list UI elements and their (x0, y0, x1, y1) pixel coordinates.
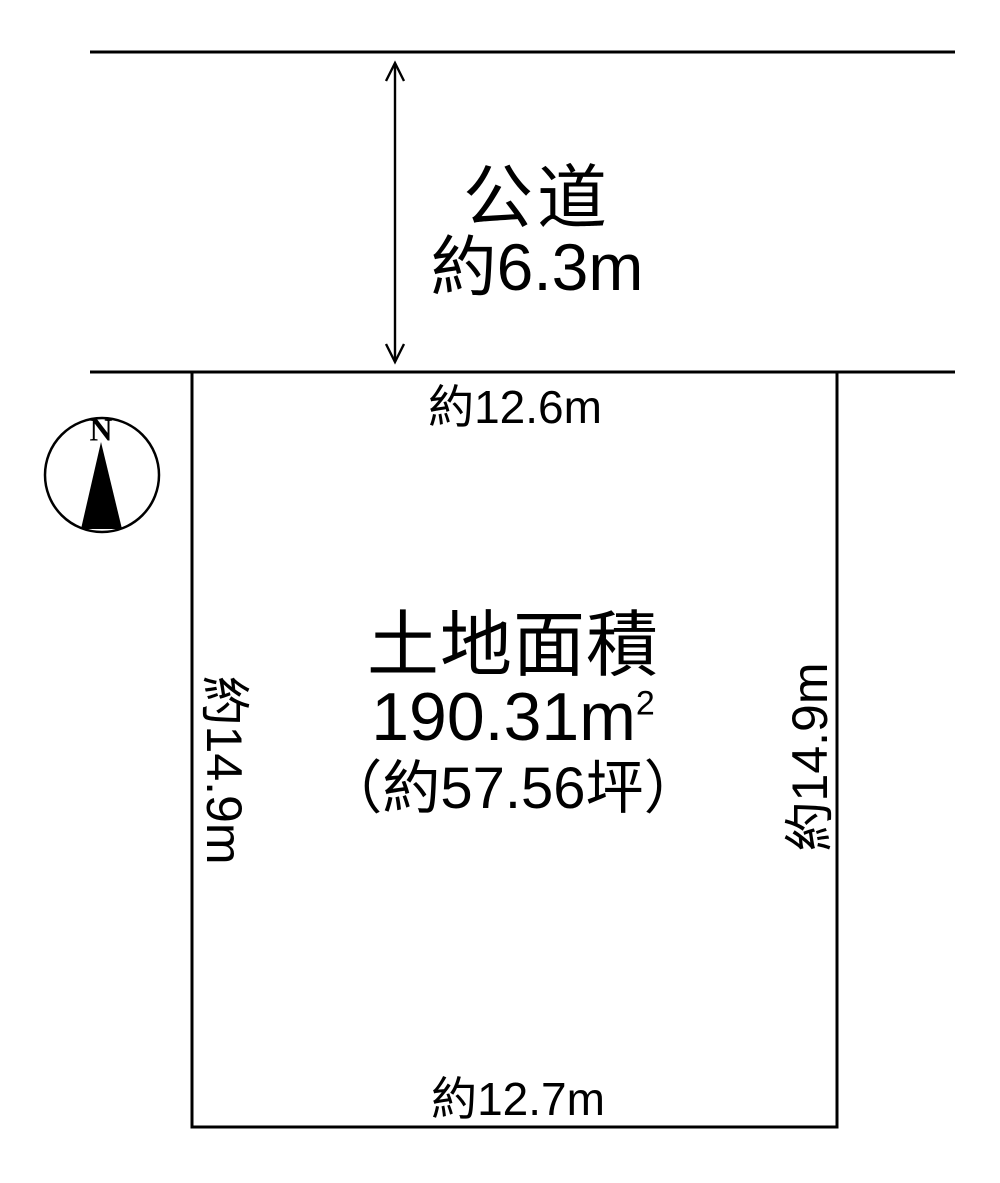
dimension-top: 約12.6m (428, 371, 602, 437)
land-plot-diagram: 公道 約6.3m N 土地面積 190.31m2 （約57.56坪） 約12.6… (0, 0, 1000, 1183)
compass-north-label: N (89, 412, 112, 449)
road-width-value: 約6.3m (431, 236, 644, 298)
plot-area-sqm-superscript: 2 (636, 685, 655, 723)
dimension-bottom: 約12.7m (431, 1063, 605, 1129)
plot-area-sqm: 190.31m2 (324, 684, 701, 750)
dimension-left: 約14.9m (192, 676, 264, 865)
dimension-right: 約14.9m (770, 663, 842, 852)
plot-area-tsubo: （約57.56坪） (324, 750, 701, 828)
plot-area-block: 土地面積 190.31m2 （約57.56坪） (324, 608, 701, 828)
plot-area-title: 土地面積 (324, 608, 701, 684)
compass-needle (81, 442, 122, 529)
road-name: 公道 (431, 160, 644, 236)
road-label: 公道 約6.3m (431, 160, 644, 298)
plot-area-sqm-value: 190.31m (371, 679, 636, 755)
road-width-arrow (386, 63, 404, 362)
